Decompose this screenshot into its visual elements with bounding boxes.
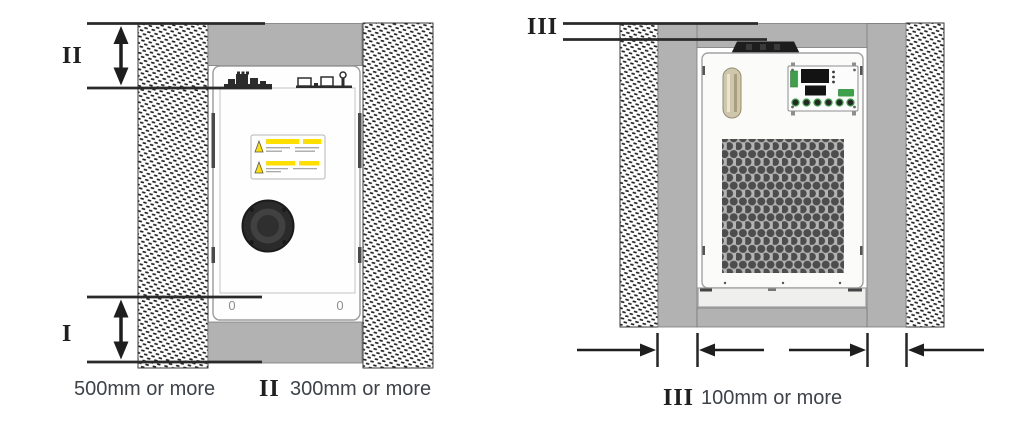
ventilation-grille: [722, 139, 844, 273]
side-view-diagram: [563, 23, 984, 367]
machine-front-view: 0 0: [212, 66, 362, 320]
left-wall-section: [620, 23, 658, 327]
round-filter-cap: [243, 201, 294, 252]
control-panel: [788, 63, 858, 116]
handle-ribs: [746, 44, 780, 50]
left-wall-section: [138, 23, 208, 368]
caption-side-gap: 100mm or more: [701, 388, 842, 408]
warning-labels: [251, 135, 325, 179]
clearance-diagram-graphics: 0 0: [0, 0, 1026, 426]
caption-front-gap: 500mm or more: [74, 379, 215, 399]
foot-slot-mark: 0: [336, 298, 343, 313]
display-screen-secondary: [805, 86, 826, 96]
level-gauge: [723, 68, 741, 118]
top-clearance-band: [208, 24, 362, 66]
gap-marker-III: III: [527, 15, 558, 39]
machine-base: [698, 288, 866, 307]
panel-button-green: [838, 89, 854, 97]
dimension-arrows: [577, 344, 984, 357]
caption-marker-II: II: [259, 377, 280, 401]
machine-side-view: [698, 42, 866, 308]
machine-front-body: [213, 66, 360, 320]
gap-marker-II: II: [62, 44, 83, 68]
gap-I-arrow: [114, 300, 129, 360]
right-wall-section: [906, 23, 944, 327]
bottom-clearance-band: [208, 322, 362, 363]
gap-marker-I: I: [62, 322, 72, 346]
display-screen: [801, 69, 829, 83]
dimension-ticks: [658, 333, 907, 367]
front-view-diagram: 0 0: [87, 23, 433, 368]
caption-top-gap: 300mm or more: [290, 379, 431, 399]
foot-slot-mark: 0: [228, 298, 235, 313]
gap-II-arrow: [114, 26, 129, 86]
installation-clearance-figure: 0 0: [0, 0, 1026, 426]
right-wall-section: [363, 23, 433, 368]
caption-marker-III: III: [663, 386, 694, 410]
power-indicator: [791, 71, 798, 87]
